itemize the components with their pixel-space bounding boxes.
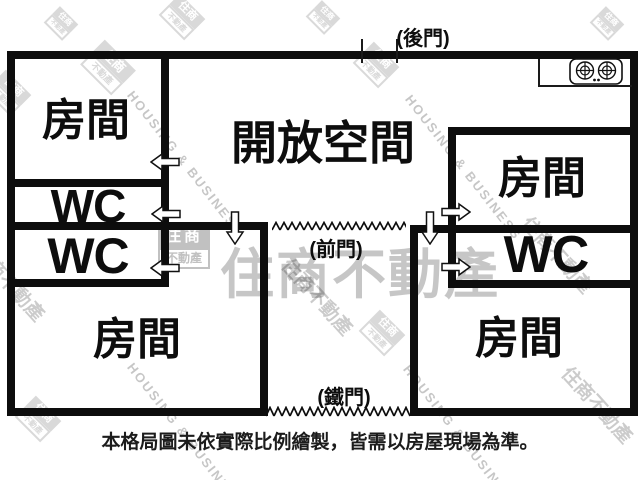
watermark-logo-row2: 不動產 xyxy=(44,14,71,41)
door-arrow-left-icon xyxy=(151,204,181,224)
wall-outer-right xyxy=(630,51,638,416)
watermark-logo-diamond: 住商 不動產 xyxy=(359,310,406,357)
watermark-logo-diamond: 住商 不動產 xyxy=(159,0,206,40)
room-label-open-space: 開放空間 xyxy=(231,120,415,166)
watermark-housing-business: HOUSING & BUSINESS xyxy=(124,360,246,480)
floor-plan-canvas: HOUSING & BUSINESS HOUSING & BUSINESS HO… xyxy=(0,0,640,480)
wc-label-left-upper: WC xyxy=(51,183,126,229)
watermark-logo-row1: 住商 xyxy=(598,6,624,32)
watermark-logo-row1: 住商 xyxy=(314,0,340,26)
watermark-logo-diamond: 住商 不動產 xyxy=(0,70,31,117)
watermark-housing-business: HOUSING & BUSINESS xyxy=(400,362,522,480)
door-arrow-down-icon xyxy=(420,211,440,245)
watermark-logo-row2: 不動產 xyxy=(359,320,395,356)
kitchen-counter-line-vertical xyxy=(538,59,540,87)
wall-outer-left xyxy=(7,51,15,416)
front-door-label: (前門) xyxy=(309,240,362,260)
watermark-logo-row1: 住商 xyxy=(92,40,136,84)
door-arrow-down-icon xyxy=(225,211,245,245)
watermark-logo-diamond: 住商 不動產 xyxy=(306,0,341,35)
watermark-logo-row1: 住商 xyxy=(369,310,405,346)
door-arrow-left-icon xyxy=(150,258,180,278)
room-label-top-left: 房間 xyxy=(42,99,130,143)
wall-outer-bottom-right xyxy=(410,408,638,416)
back-door-tick xyxy=(361,39,363,63)
iron-door-label: (鐵門) xyxy=(317,388,370,408)
watermark-logo-row1: 住商 xyxy=(169,0,205,30)
watermark-logo-row1: 住商 xyxy=(363,42,399,78)
watermark-logo-diamond: 住商 不動產 xyxy=(353,42,400,89)
watermark-logo-row2: 不動產 xyxy=(306,8,333,35)
watermark-logo-diamond: 住商 不動產 xyxy=(590,6,625,41)
watermark-logo-row1: 住商 xyxy=(52,6,78,32)
wall-outer-bottom-left xyxy=(7,408,268,416)
wall-corridor-right xyxy=(410,225,418,416)
watermark-logo-row2: 不動產 xyxy=(590,14,617,41)
back-door-label: (後門) xyxy=(396,29,449,49)
wall-corridor-left xyxy=(260,222,268,416)
watermark-brand-diagonal: 住商不動產 xyxy=(276,252,360,341)
front-door-zigzag xyxy=(272,221,406,231)
door-arrow-left-icon xyxy=(150,152,180,172)
door-arrow-right-icon xyxy=(441,202,471,222)
door-arrow-right-icon xyxy=(441,257,471,277)
room-label-bottom-left: 房間 xyxy=(93,318,181,362)
stove-icon xyxy=(568,57,626,87)
watermark-logo-row2: 不動產 xyxy=(159,4,195,40)
disclaimer-caption: 本格局圖未依實際比例繪製，皆需以房屋現場為準。 xyxy=(0,427,640,454)
wc-label-right: WC xyxy=(504,229,589,281)
room-label-bottom-right: 房間 xyxy=(475,317,563,361)
wall-right-room-top xyxy=(448,127,638,135)
watermark-logo-diamond: 住商 不動產 xyxy=(80,40,136,96)
watermark-logo-row1: 住商 xyxy=(0,70,31,106)
wall-outer-top xyxy=(7,51,638,59)
watermark-logo-diamond: 住商 不動產 xyxy=(44,6,79,41)
wc-label-left-lower: WC xyxy=(47,231,128,281)
room-label-right: 房間 xyxy=(498,157,586,201)
